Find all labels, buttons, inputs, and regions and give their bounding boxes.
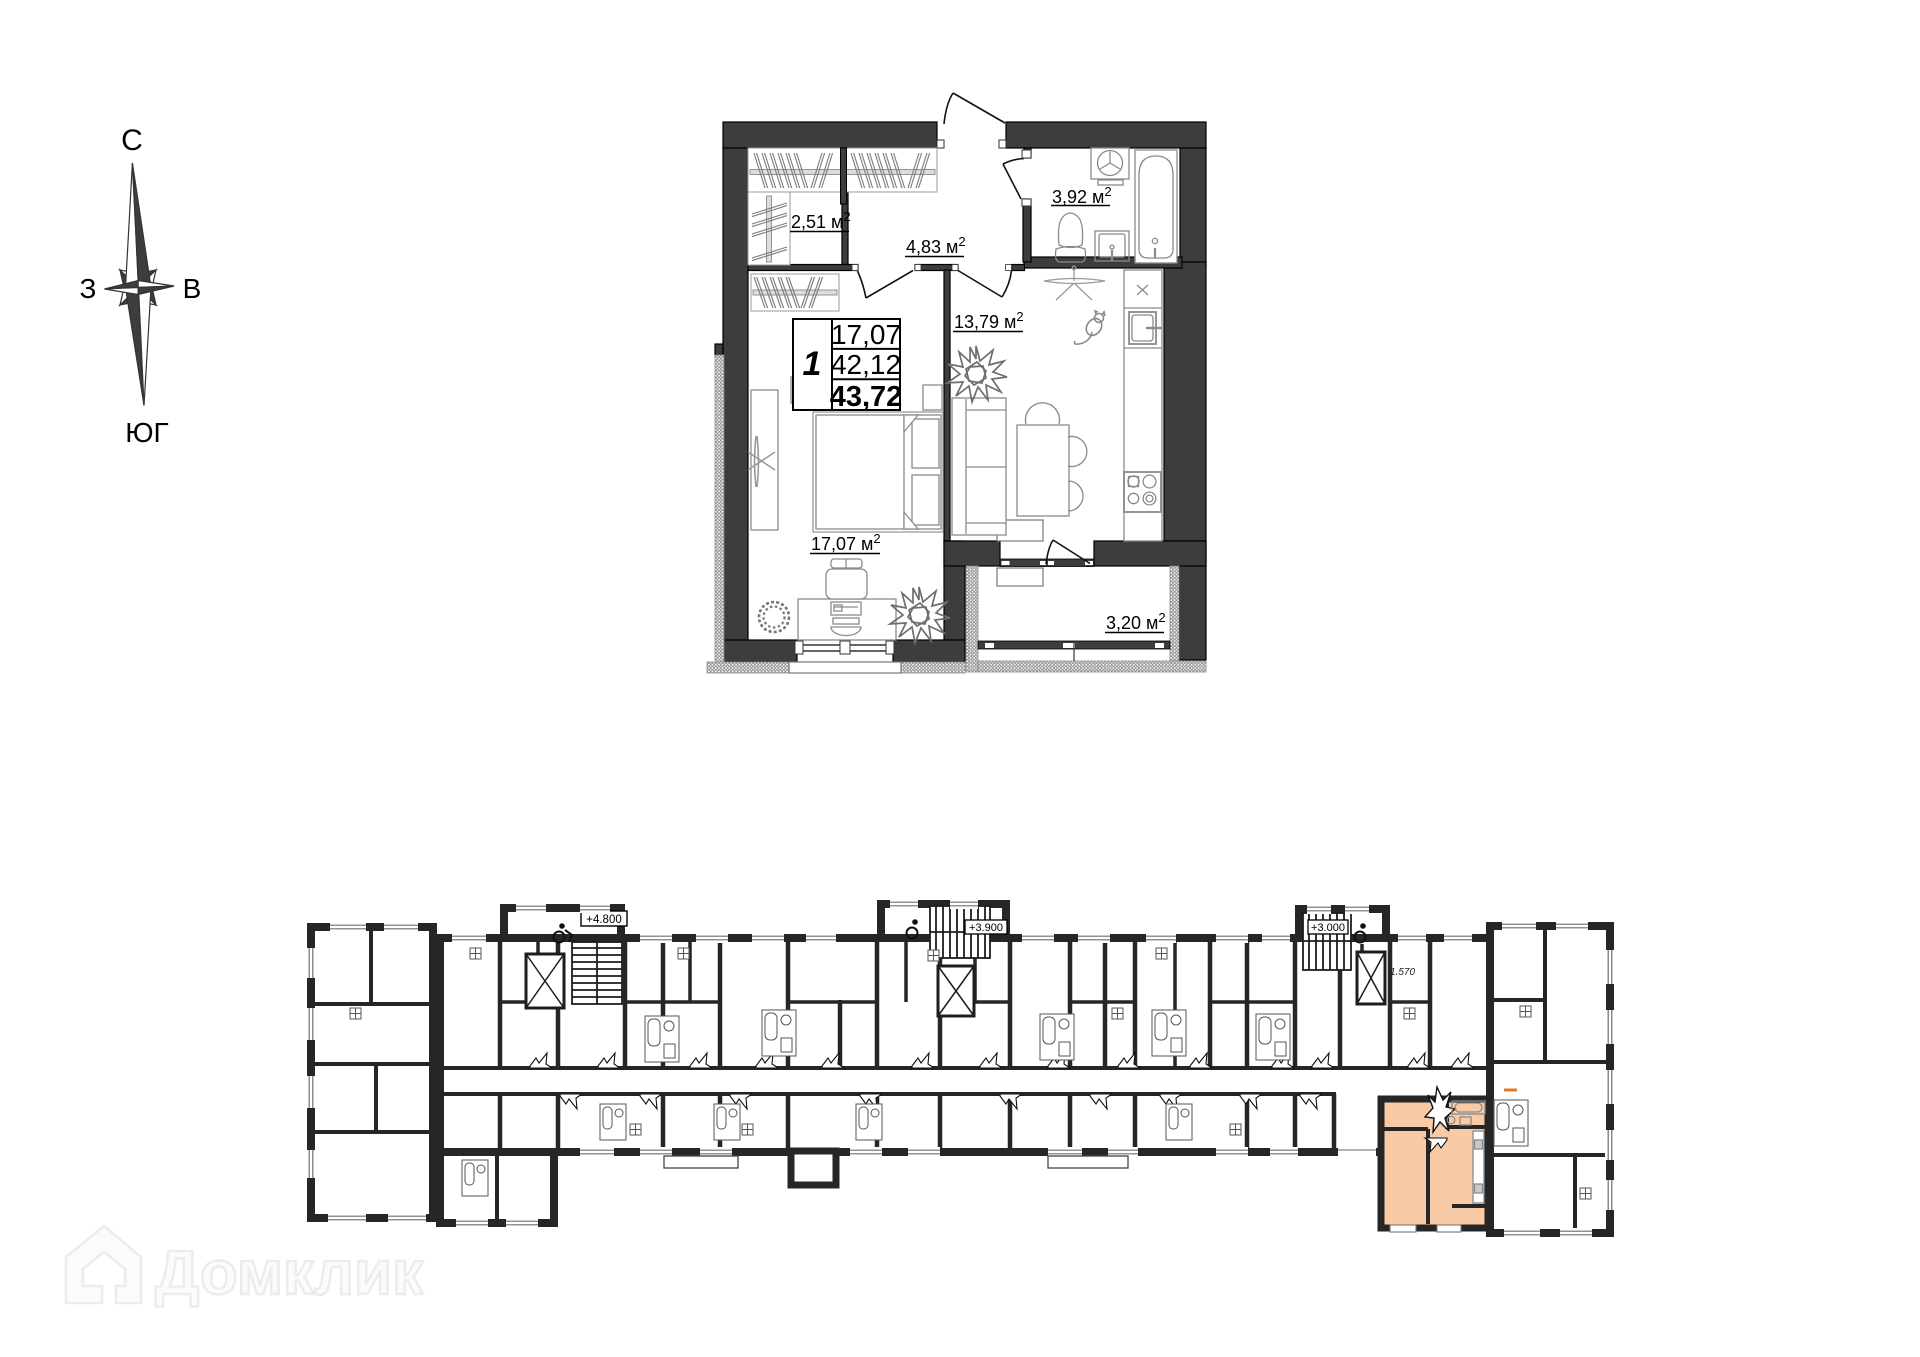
svg-text:13,79 м2: 13,79 м2 [954, 309, 1024, 332]
svg-text:+3.000: +3.000 [1311, 922, 1345, 934]
svg-text:В: В [183, 273, 202, 304]
svg-text:З: З [80, 273, 97, 304]
svg-text:1: 1 [803, 345, 822, 383]
svg-text:+3.900: +3.900 [969, 922, 1003, 934]
svg-text:43,72: 43,72 [830, 381, 903, 413]
svg-text:17,07 м2: 17,07 м2 [811, 531, 881, 554]
svg-text:42,12: 42,12 [831, 349, 901, 380]
svg-text:3,92 м2: 3,92 м2 [1052, 184, 1112, 207]
svg-text:2,51 м2: 2,51 м2 [791, 209, 851, 232]
svg-text:ЮГ: ЮГ [125, 417, 168, 448]
svg-text:4,83 м2: 4,83 м2 [906, 234, 966, 257]
svg-text:+4.800: +4.800 [586, 914, 622, 926]
svg-text:17,07: 17,07 [831, 319, 901, 350]
svg-text:1.570: 1.570 [1390, 967, 1415, 978]
svg-text:С: С [121, 124, 143, 157]
svg-text:3,20 м2: 3,20 м2 [1106, 610, 1166, 633]
svg-text:Домклик: Домклик [155, 1239, 424, 1308]
